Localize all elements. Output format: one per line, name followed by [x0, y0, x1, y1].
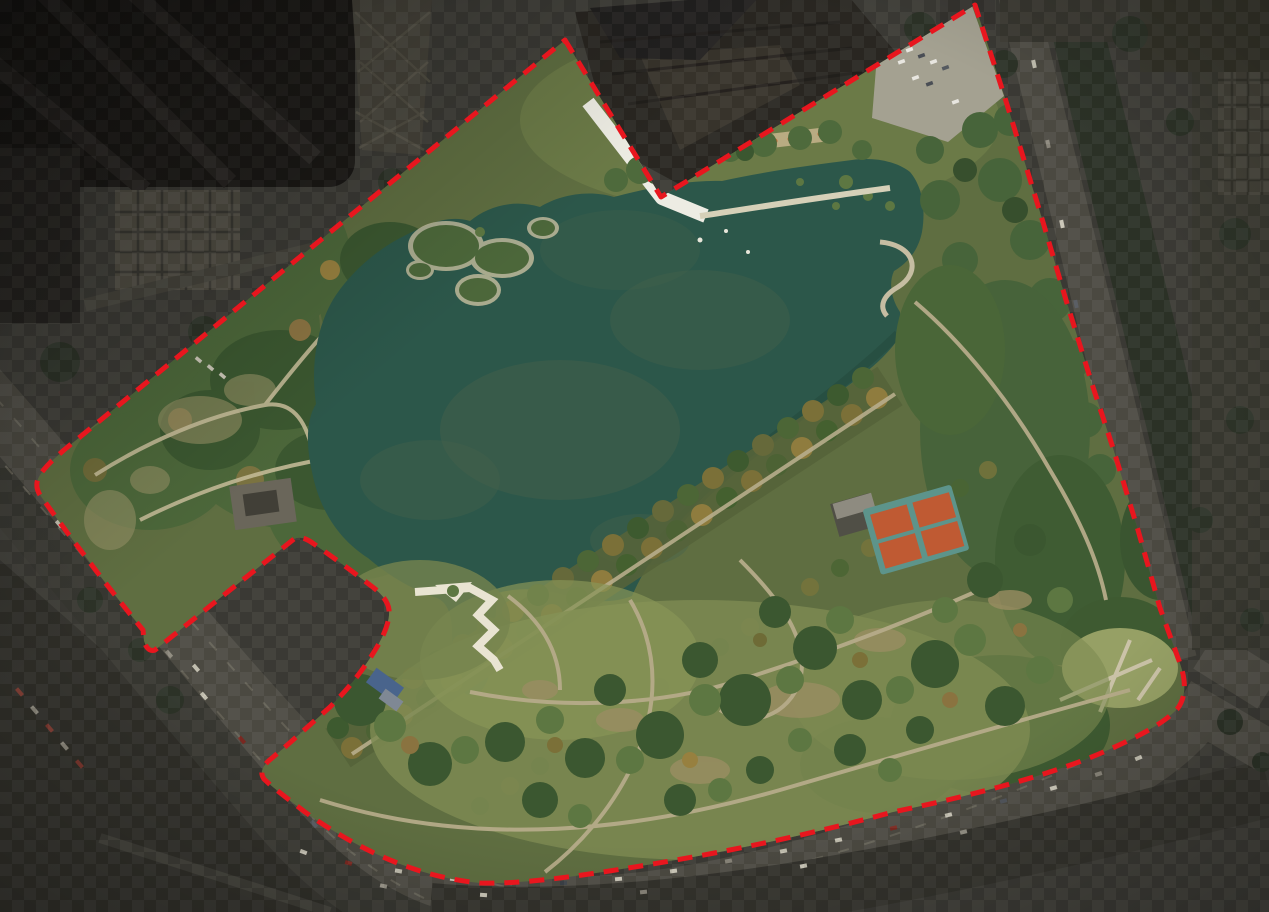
map-canvas[interactable]	[0, 0, 1269, 912]
satellite-map-view[interactable]	[0, 0, 1269, 912]
vignette	[0, 0, 1269, 912]
